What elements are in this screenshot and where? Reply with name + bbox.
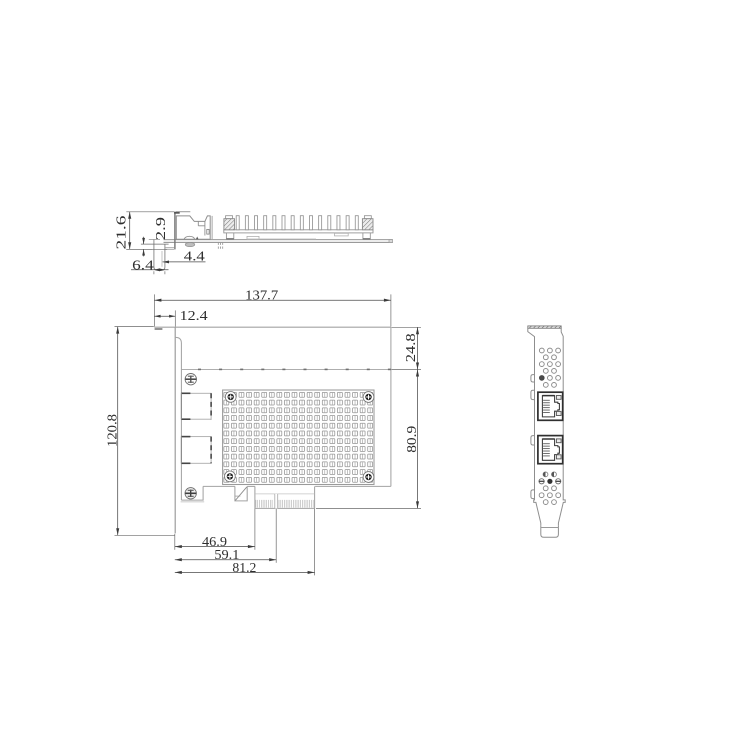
svg-text:24.8: 24.8	[404, 333, 419, 362]
svg-text:6.4: 6.4	[132, 258, 154, 273]
svg-text:137.7: 137.7	[245, 288, 278, 303]
svg-text:21.6: 21.6	[115, 216, 130, 250]
svg-text:120.8: 120.8	[105, 414, 120, 447]
svg-text:81.2: 81.2	[232, 561, 256, 576]
svg-text:80.9: 80.9	[405, 426, 420, 453]
svg-text:12.4: 12.4	[180, 309, 208, 324]
svg-text:2.9: 2.9	[154, 217, 169, 240]
svg-text:4.4: 4.4	[184, 250, 205, 265]
